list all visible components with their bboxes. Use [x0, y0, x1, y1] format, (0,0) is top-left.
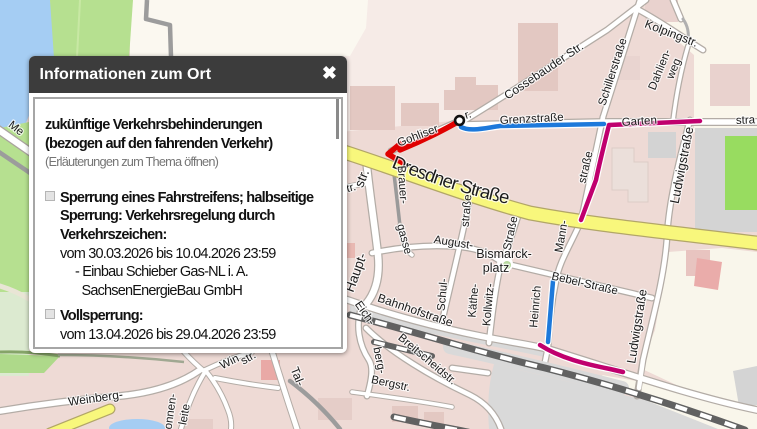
svg-text:stra: stra: [736, 114, 756, 127]
svg-text:Garten: Garten: [621, 115, 657, 129]
svg-text:platz: platz: [483, 261, 509, 275]
